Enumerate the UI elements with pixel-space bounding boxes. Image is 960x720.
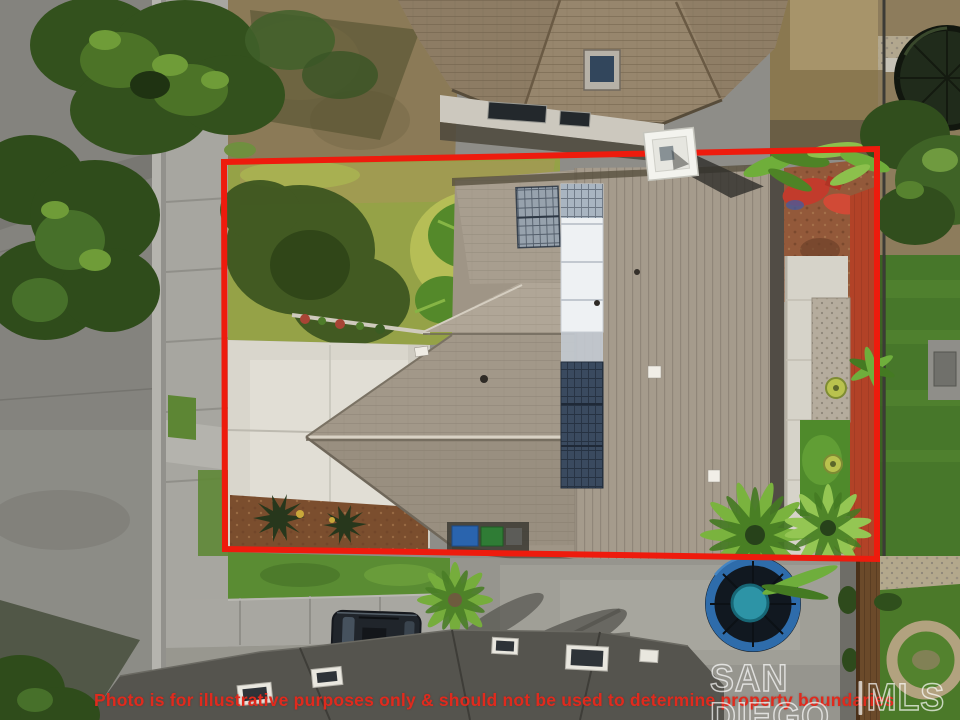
ac-pad xyxy=(934,352,956,386)
subject-lot xyxy=(220,139,896,590)
neighbor-house-top xyxy=(398,0,878,162)
aerial-photo-scene xyxy=(0,0,960,720)
disclaimer-text: Photo is for illustrative purposes only … xyxy=(94,690,894,711)
aerial-listing-photo: Photo is for illustrative purposes only … xyxy=(0,0,960,720)
front-palm-tree xyxy=(417,562,493,638)
trash-bins xyxy=(447,522,529,552)
neighbor-lawn xyxy=(878,255,960,560)
